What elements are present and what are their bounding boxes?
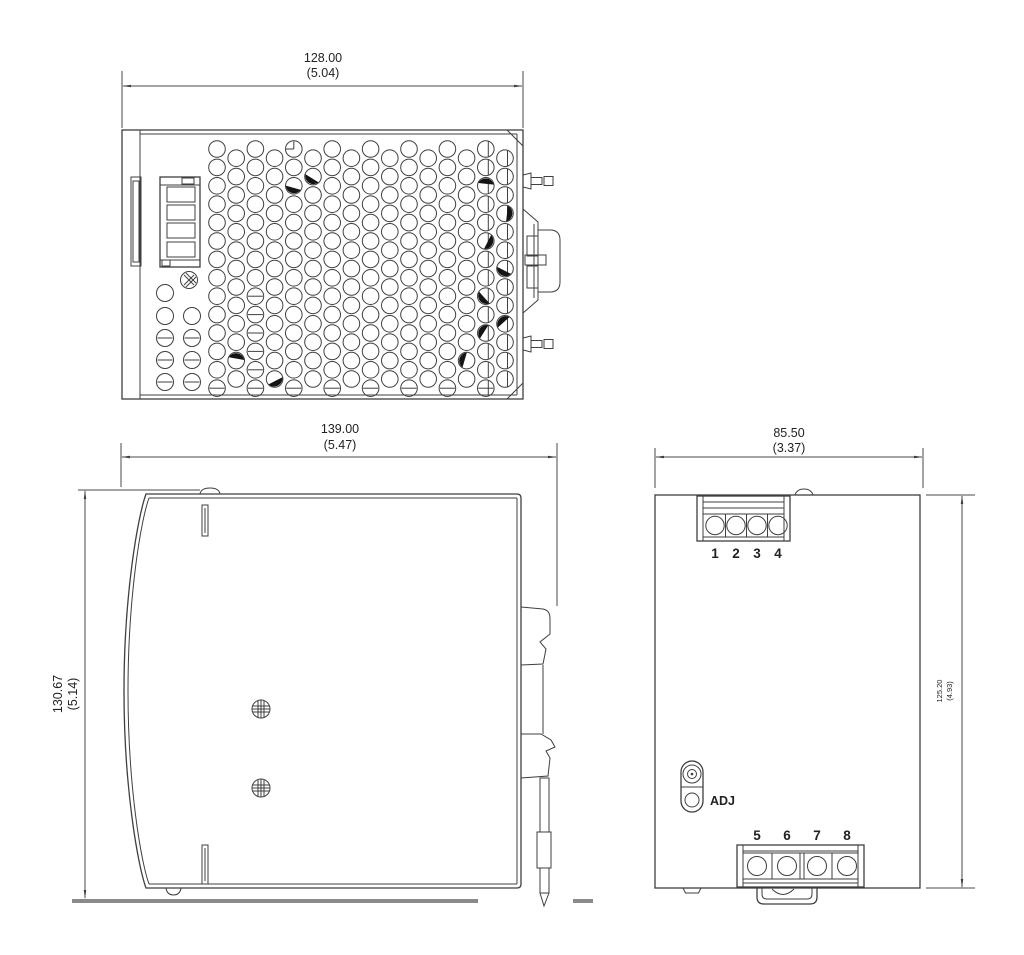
front-view-width-mm: 85.50 xyxy=(773,426,804,440)
side-view: 139.00 (5.47) 130.67 (5.14) xyxy=(51,422,593,906)
side-slot-bottom xyxy=(202,845,208,884)
din-clip-profile xyxy=(521,607,555,906)
bottom-clip-bump xyxy=(166,888,181,895)
din-clip-tab xyxy=(757,888,817,904)
side-view-width-mm: 139.00 xyxy=(321,422,359,436)
mounting-pin-bottom xyxy=(523,336,553,352)
terminal-number: 6 xyxy=(783,828,791,843)
dimension-drawing-canvas: 128.00 (5.04) xyxy=(0,0,1024,955)
din-rail-baseline xyxy=(72,899,478,903)
input-terminal-block xyxy=(697,496,790,541)
output-terminal-block xyxy=(737,845,864,887)
screw-head xyxy=(181,272,198,289)
side-view-height-in: (5.14) xyxy=(66,678,80,711)
terminal-connector-block xyxy=(160,177,200,267)
screw-head xyxy=(252,779,270,797)
output-terminal-numbers: 5 6 7 8 xyxy=(753,828,851,843)
input-terminal-numbers: 1 2 3 4 xyxy=(711,546,782,561)
terminal-number: 7 xyxy=(813,828,821,843)
side-slot-top xyxy=(202,505,208,536)
top-clip-bump xyxy=(200,488,220,494)
terminal-number: 4 xyxy=(774,546,782,561)
technical-drawing-page: 128.00 (5.04) xyxy=(0,0,1024,955)
mounting-pin-top xyxy=(523,173,553,189)
left-edge-strip xyxy=(131,177,141,266)
bottom-clip-bump xyxy=(683,888,701,893)
top-clip-bump xyxy=(795,489,813,495)
terminal-number: 8 xyxy=(843,828,851,843)
side-view-height-mm: 130.67 xyxy=(51,675,65,713)
side-view-body xyxy=(124,494,521,888)
terminal-number: 2 xyxy=(732,546,740,561)
front-view-width-in: (3.37) xyxy=(773,441,806,455)
top-view-width-in: (5.04) xyxy=(307,66,340,80)
din-rail-baseline-segment xyxy=(573,899,593,903)
vent-holes-grid xyxy=(209,141,514,397)
terminal-number: 1 xyxy=(711,546,719,561)
adj-potentiometer xyxy=(681,761,703,812)
terminal-number: 3 xyxy=(753,546,761,561)
adj-label: ADJ xyxy=(710,794,735,808)
screw-head xyxy=(252,700,270,718)
front-view: 85.50 (3.37) 125.20 (4.93) xyxy=(655,426,975,904)
front-view-height-in: (4.93) xyxy=(945,681,954,701)
front-view-height-mm: 125.20 xyxy=(935,680,944,703)
vent-holes-left-group xyxy=(157,285,201,391)
top-view-width-mm: 128.00 xyxy=(304,51,342,65)
din-rail-section xyxy=(523,209,560,313)
side-view-width-in: (5.47) xyxy=(324,438,357,452)
terminal-number: 5 xyxy=(753,828,761,843)
top-view: 128.00 (5.04) xyxy=(122,51,560,399)
